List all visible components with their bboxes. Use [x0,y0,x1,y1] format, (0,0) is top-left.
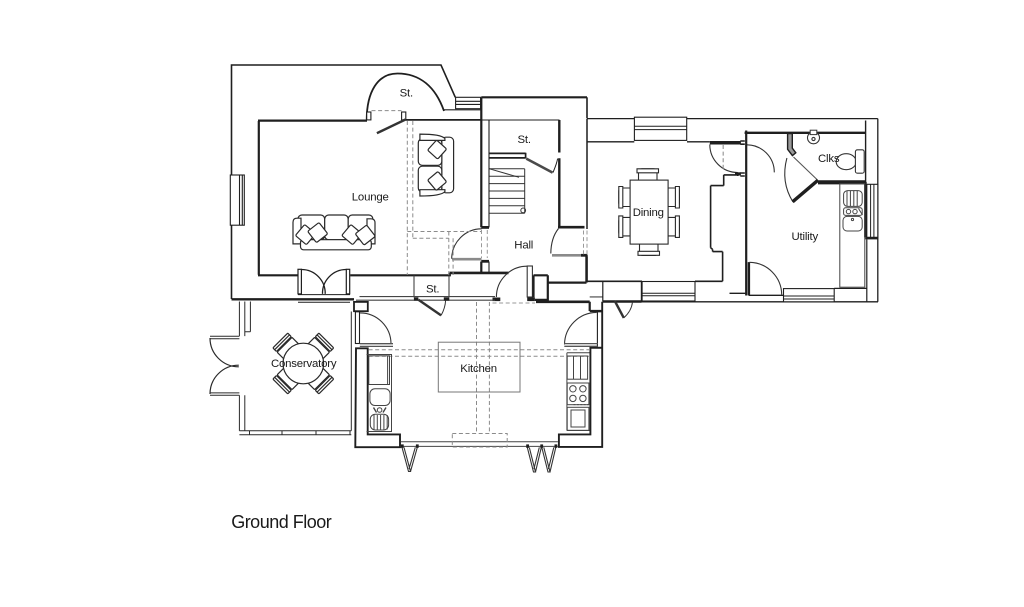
svg-text:Kitchen: Kitchen [460,363,497,375]
svg-text:Dining: Dining [633,207,664,219]
svg-text:St.: St. [400,88,413,100]
svg-text:St.: St. [426,283,439,295]
svg-text:Clks: Clks [818,153,840,165]
svg-text:Lounge: Lounge [352,191,389,203]
svg-text:Utility: Utility [792,231,819,243]
svg-text:Ground Floor: Ground Floor [231,512,332,532]
svg-text:Conservatory: Conservatory [271,358,337,370]
svg-text:St.: St. [518,134,531,146]
svg-text:Hall: Hall [514,239,533,251]
